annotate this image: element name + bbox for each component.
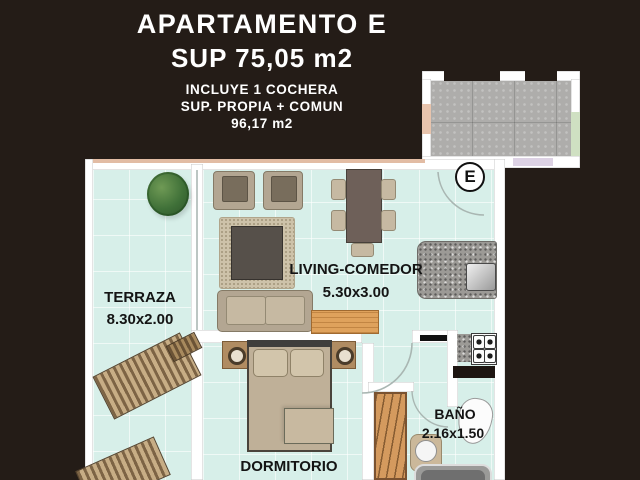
coffee-table (231, 226, 283, 280)
sofa-cushion-1 (226, 296, 266, 325)
door-arc-dormitorio (362, 343, 412, 393)
bano-label: BAÑO (415, 406, 495, 422)
bathtub-basin (421, 470, 485, 480)
sink-bowl-icon (415, 440, 437, 462)
kitchen-dark-counter (453, 366, 495, 378)
terraza-label: TERRAZA (90, 289, 190, 306)
wood-bench (311, 310, 379, 334)
pillow-left (253, 349, 288, 377)
entrance-badge: E (455, 162, 485, 192)
stove-counter-strip (457, 334, 471, 362)
armchair-1-seat (222, 176, 248, 202)
terraza-size: 8.30x2.00 (90, 311, 190, 328)
bed-headboard (247, 340, 332, 347)
armchair-2 (263, 171, 303, 210)
plant-icon (147, 172, 189, 216)
stove (471, 333, 497, 365)
living-size: 5.30x3.00 (286, 284, 426, 301)
kitchen-sink (466, 263, 496, 291)
dormitorio-label: DORMITORIO (219, 458, 359, 475)
dining-chair-2 (331, 210, 346, 231)
pillow-right (290, 349, 324, 377)
burner-4 (484, 349, 496, 363)
wardrobe (374, 392, 407, 480)
bed-folded-blanket (284, 408, 334, 444)
armchair-2-seat (271, 176, 297, 202)
armchair-1 (213, 171, 255, 210)
dining-chair-3 (381, 179, 396, 200)
burner-2 (484, 335, 496, 349)
living-label: LIVING-COMEDOR (286, 261, 426, 278)
dining-table (346, 169, 382, 243)
bano-size: 2.16x1.50 (413, 425, 493, 441)
dining-chair-1 (331, 179, 346, 200)
dining-chair-5 (351, 243, 374, 257)
bed (247, 340, 332, 452)
lamp-left-icon (228, 347, 246, 365)
bathtub (414, 464, 492, 480)
lamp-right-icon (336, 347, 354, 365)
floorplan-poster: APARTAMENTO E SUP 75,05 m2 INCLUYE 1 COC… (0, 0, 640, 480)
dining-chair-4 (381, 210, 396, 231)
